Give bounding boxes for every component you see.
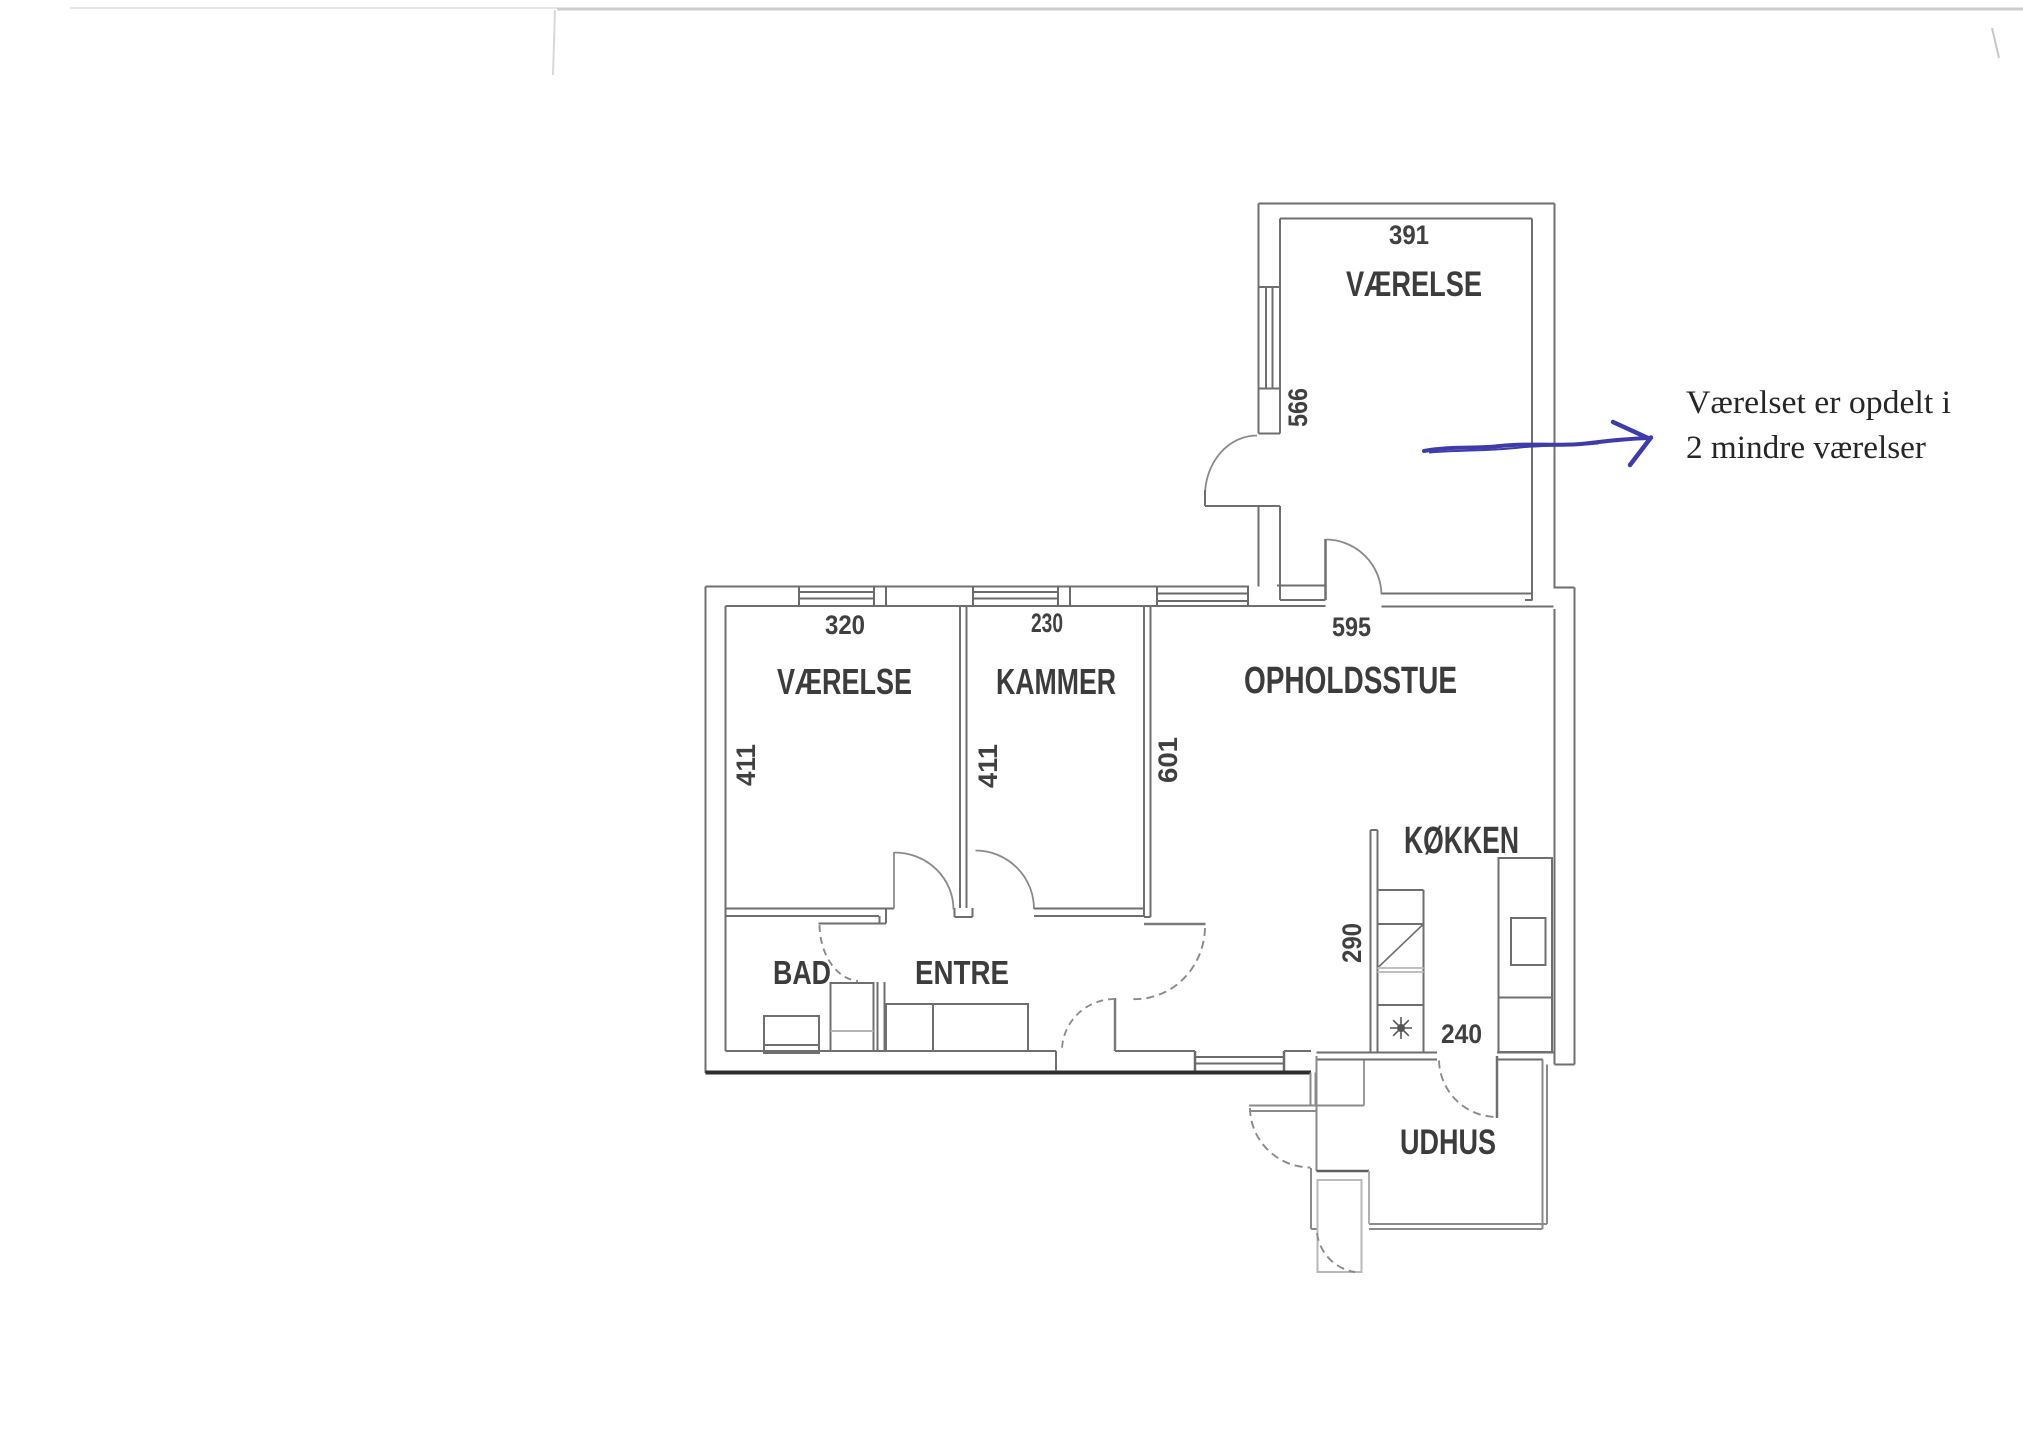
svg-text:566: 566 — [1283, 388, 1313, 427]
svg-text:595: 595 — [1332, 612, 1371, 642]
svg-text:290: 290 — [1337, 923, 1367, 963]
svg-text:391: 391 — [1389, 220, 1429, 250]
svg-text:601: 601 — [1153, 737, 1183, 783]
svg-text:BAD: BAD — [773, 954, 831, 991]
svg-text:240: 240 — [1441, 1019, 1482, 1049]
svg-text:OPHOLDSSTUE: OPHOLDSSTUE — [1244, 660, 1457, 702]
svg-text:VÆRELSE: VÆRELSE — [1346, 265, 1482, 304]
svg-text:KAMMER: KAMMER — [996, 661, 1116, 702]
svg-text:411: 411 — [731, 744, 761, 786]
svg-text:KØKKEN: KØKKEN — [1404, 820, 1519, 862]
svg-text:2 mindre værelser: 2 mindre værelser — [1686, 430, 1926, 466]
svg-text:UDHUS: UDHUS — [1400, 1123, 1496, 1162]
svg-text:320: 320 — [825, 610, 865, 640]
svg-text:ENTRE: ENTRE — [915, 954, 1009, 991]
svg-text:Værelset er opdelt i: Værelset er opdelt i — [1686, 385, 1951, 421]
svg-text:VÆRELSE: VÆRELSE — [777, 661, 912, 702]
svg-text:230: 230 — [1031, 608, 1063, 638]
svg-text:411: 411 — [973, 744, 1003, 788]
